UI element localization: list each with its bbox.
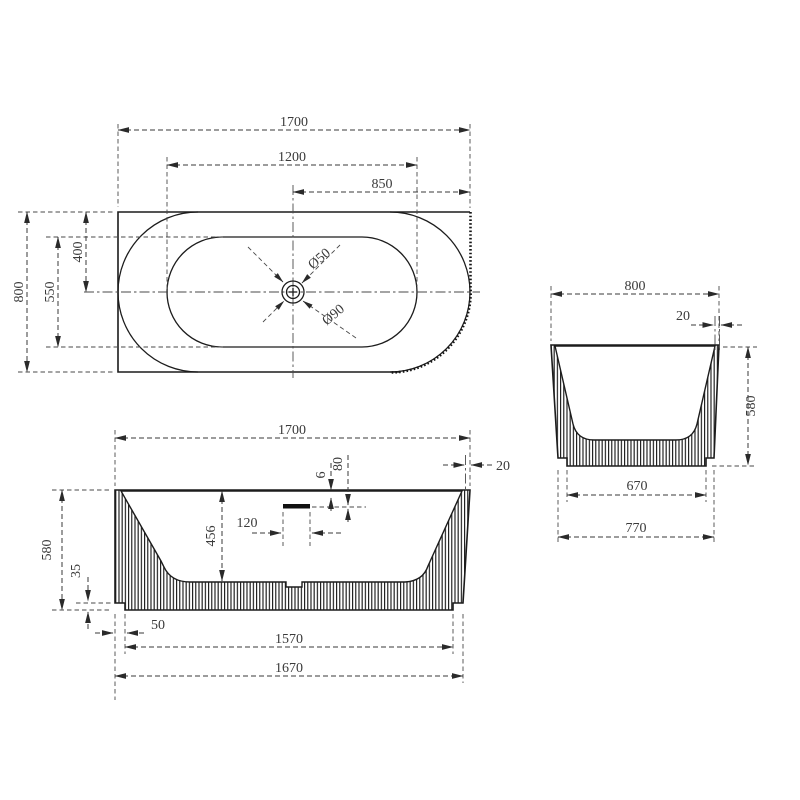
dim-front-overall-height: 580 bbox=[40, 540, 55, 561]
side-basin bbox=[555, 346, 715, 440]
dim-front-overall-length: 1700 bbox=[278, 423, 306, 438]
dim-plan-basin-width: 550 bbox=[43, 282, 58, 303]
dim-front-plinth-length: 1570 bbox=[275, 632, 303, 647]
overflow-slot bbox=[283, 504, 310, 509]
drawing-canvas: Ø50 Ø90 1700 1200 850 800 550 400 bbox=[0, 0, 800, 800]
dim-front-plinth-inset: 50 bbox=[151, 618, 165, 633]
dim-front-plinth-height: 35 bbox=[69, 564, 84, 578]
dim-side-base-width: 770 bbox=[626, 521, 647, 536]
dim-plan-basin-length: 1200 bbox=[278, 150, 306, 165]
dim-plan-centerline-offset: 400 bbox=[71, 242, 86, 263]
dim-front-overflow-width: 120 bbox=[237, 516, 258, 531]
bathtub-technical-drawing: Ø50 Ø90 1700 1200 850 800 550 400 bbox=[0, 0, 800, 800]
dim-plan-drain-to-end: 850 bbox=[372, 177, 393, 192]
dim-front-overflow-drop: 80 bbox=[331, 457, 346, 471]
dim-side-rim-thickness: 20 bbox=[676, 309, 690, 324]
dim-side-plinth-width: 670 bbox=[627, 479, 648, 494]
dim-front-overflow-lip: 6 bbox=[314, 472, 329, 479]
dim-front-basin-depth: 456 bbox=[204, 526, 219, 547]
dim-plan-overall-width: 800 bbox=[12, 282, 27, 303]
dim-front-base-length: 1670 bbox=[275, 661, 303, 676]
dim-front-rim-thickness: 20 bbox=[496, 459, 510, 474]
dim-side-overall-width: 800 bbox=[625, 279, 646, 294]
dim-plan-overall-length: 1700 bbox=[280, 115, 308, 130]
dim-side-overall-height: 580 bbox=[744, 396, 759, 417]
